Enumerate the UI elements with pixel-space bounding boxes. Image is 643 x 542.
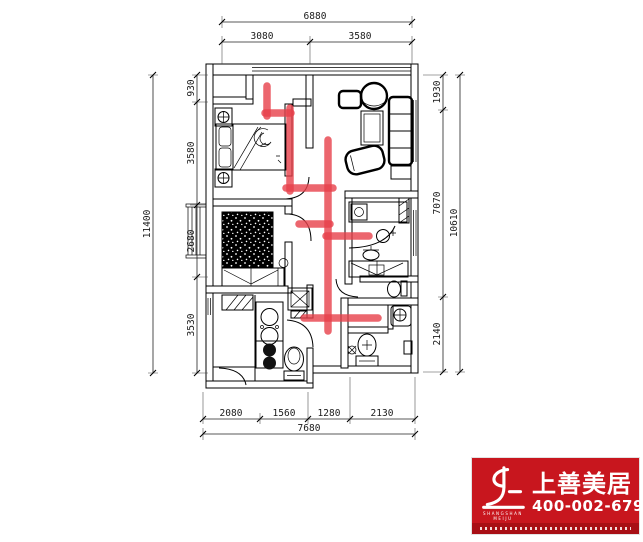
armchair [361,83,387,109]
brand-en-text: SHANGSHAN MEIJU [483,511,523,521]
rear-hall [388,281,408,297]
brand-name-cn: 上善美居 [532,471,632,497]
floor-plan-page: 6880 3080 3580 11400 930 3580 2680 3530 … [0,0,643,542]
dim-left-seg-1: 930 [186,79,197,96]
dim-bottom-seg-2: 1560 [273,408,296,419]
brand-address-strip [472,523,639,534]
kitchen-door-arc [287,320,313,347]
dim-bottom-seg-3: 1280 [318,408,341,419]
dim-right-total: 10610 [449,208,460,237]
dim-bottom-seg-4: 2130 [371,408,394,419]
brand-logo-icon [479,465,527,511]
wash-basin [363,250,379,260]
dim-right-seg-3: 2140 [432,322,443,345]
side-table [391,166,411,179]
brand-logo-mark: SHANGSHAN MEIJU [479,465,527,521]
washing-machine [351,204,367,220]
dimensions-right: 1930 7070 2140 10610 [423,72,465,375]
living-room-furniture [339,83,412,179]
dim-top-total: 6880 [304,11,327,22]
dimensions-top: 6880 3080 3580 [219,11,415,64]
wc-toilet [285,347,304,371]
dark-floor-area [222,212,273,268]
dim-top-seg-1: 3080 [251,31,274,42]
dim-top-seg-2: 3580 [349,31,372,42]
bedroom-furniture [215,108,286,187]
brand-address-dashes [480,527,631,530]
chaise-chair [344,144,387,176]
brand-card: SHANGSHAN MEIJU 上善美居 400-002-6791 [471,457,640,535]
dim-right-seg-2: 7070 [432,191,443,214]
kitchen-furniture [213,288,312,385]
dimensions-left: 11400 930 3580 2680 3530 [142,72,208,376]
bed [216,124,286,170]
dim-left-seg-4: 3530 [186,313,197,336]
dim-left-seg-3: 2680 [186,229,197,252]
brand-main: SHANGSHAN MEIJU 上善美居 400-002-6791 [472,458,639,523]
dim-right-seg-1: 1930 [432,80,443,103]
bidet [388,281,401,297]
dim-left-total: 11400 [142,209,153,238]
dim-left-seg-2: 3580 [186,141,197,164]
dim-bottom-seg-1: 2080 [220,408,243,419]
brand-en-line2: MEIJU [483,516,523,521]
dim-bottom-total: 7680 [298,423,321,434]
kitchen-sink [256,302,283,341]
laundry-counter [349,202,407,222]
middle-room [222,212,284,286]
brand-en-line1: SHANGSHAN [483,511,523,516]
sofa-armrest [339,91,361,108]
brand-phone: 400-002-6791 [532,497,643,515]
